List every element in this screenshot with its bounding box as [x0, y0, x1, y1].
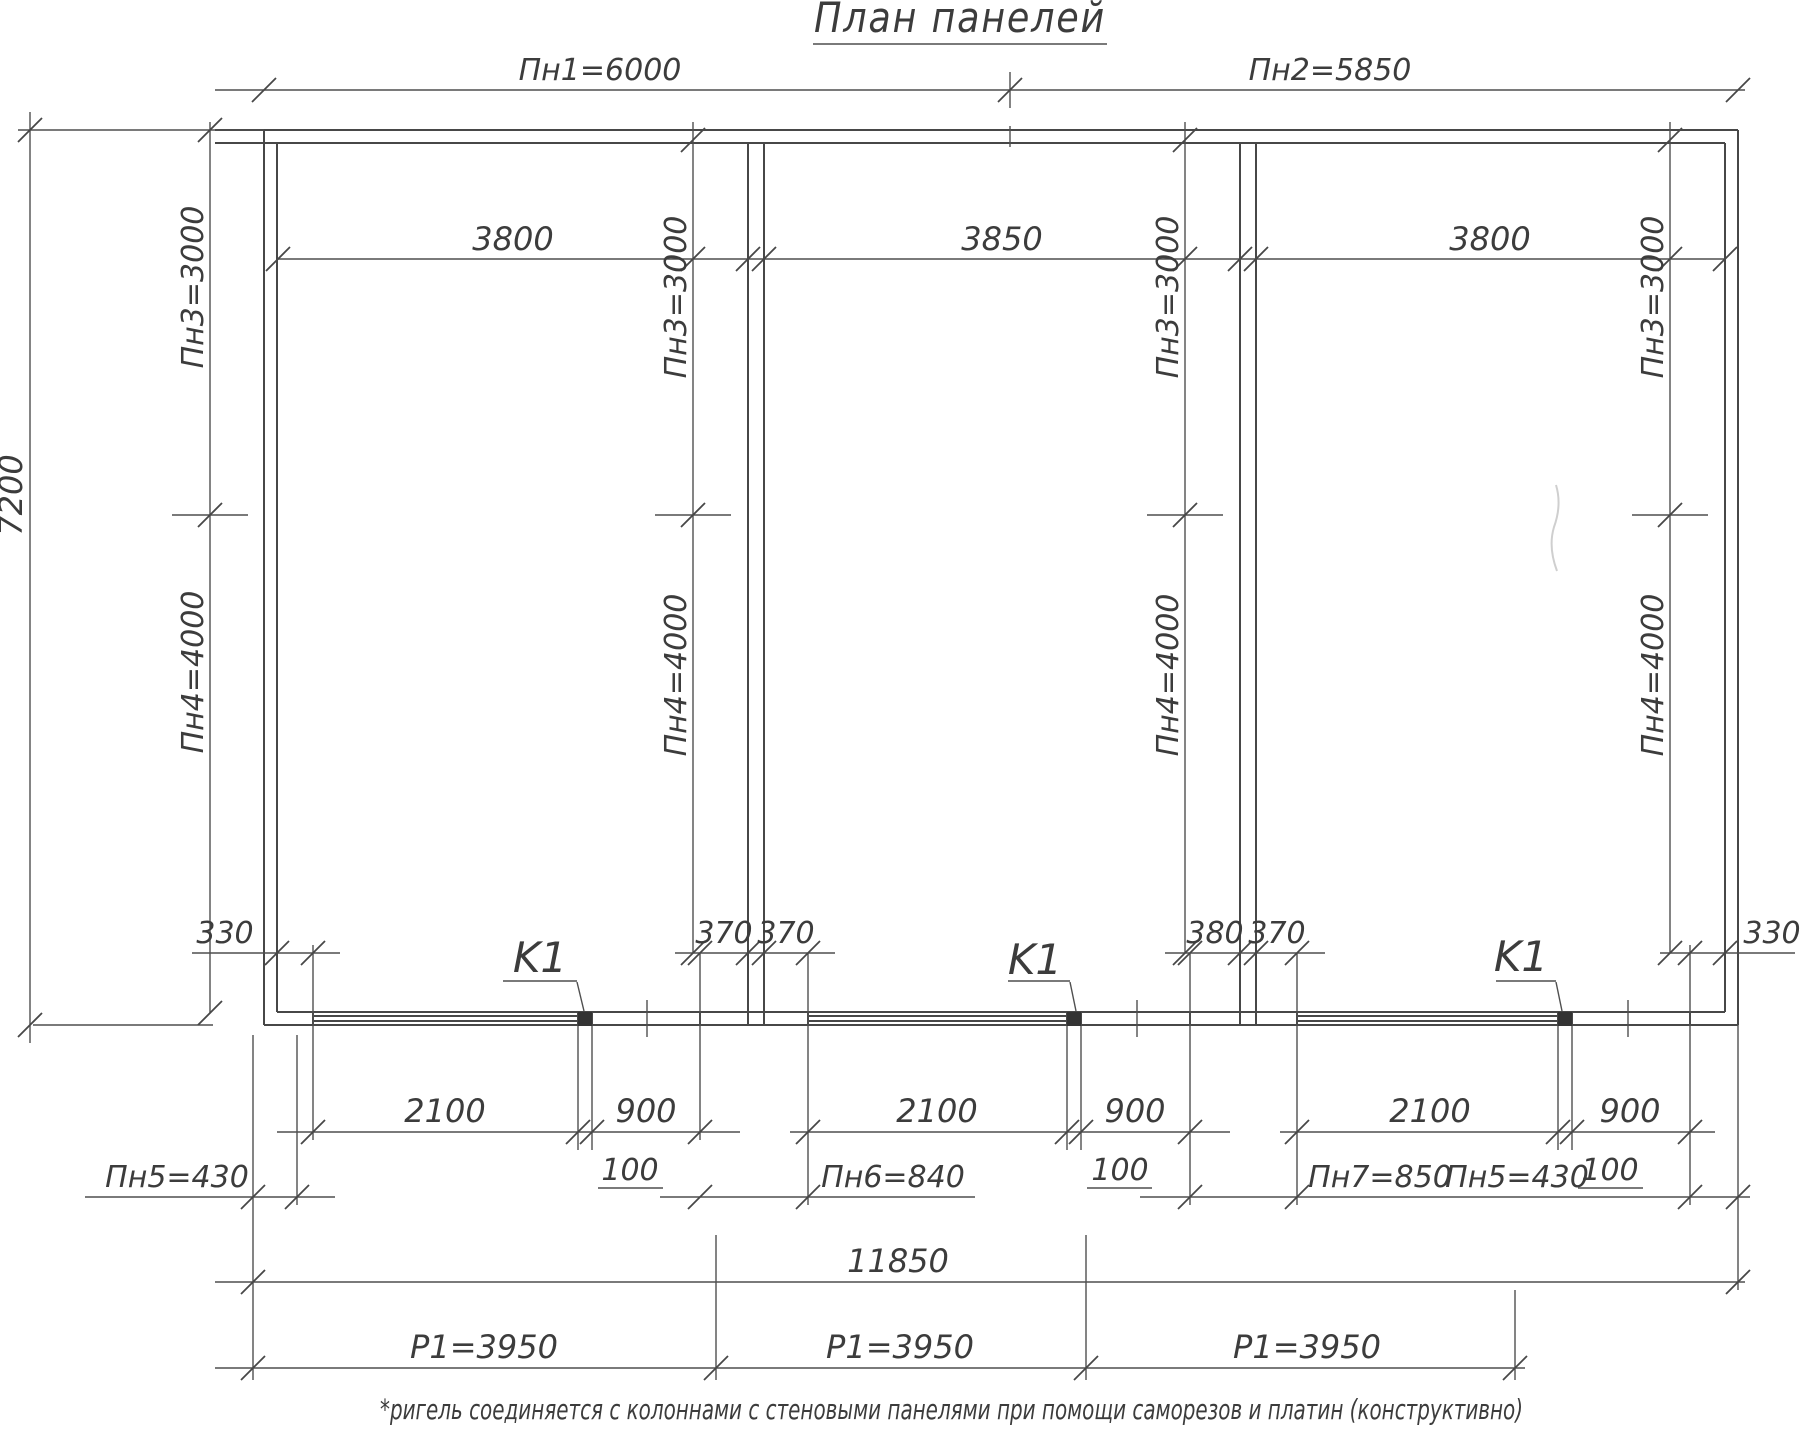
dim-bay1-panel-label: 2100: [404, 1092, 485, 1130]
dim-d1-right-370-label: 370: [757, 916, 814, 951]
dim-pn5-left-label: Пн5=430: [105, 1160, 249, 1195]
panel-plan-sheet: План панелей Пн1=6000 Пн2=5850 7200 Пн3=…: [0, 0, 1800, 1431]
column-k1-marker: [1558, 1012, 1572, 1026]
drawing-line: [1070, 982, 1076, 1011]
dim-pn1-label: Пн1=6000: [519, 53, 682, 88]
dim-pn2-label: Пн2=5850: [1249, 53, 1412, 88]
dim-bay3-opening-label: 900: [1599, 1092, 1660, 1130]
dim-pn7-label: Пн7=850: [1308, 1160, 1452, 1195]
panel-plan-drawing: План панелей Пн1=6000 Пн2=5850 7200 Пн3=…: [0, 0, 1800, 1431]
dim-bay2-pn4-label: Пн4=4000: [1151, 594, 1186, 757]
dim-pn4-label: Пн4=4000: [176, 591, 211, 754]
dim-overall-width-label: 11850: [847, 1242, 949, 1280]
dim-d2-left-380-label: 380: [1186, 916, 1243, 951]
drawing-line: [577, 982, 584, 1011]
column-k1-marker: [1067, 1012, 1081, 1026]
column-k1-label: K1: [513, 933, 567, 982]
drawing-title: План панелей: [814, 0, 1106, 42]
column-k1-marker: [578, 1012, 592, 1026]
dim-bay2-width-label: 3850: [961, 220, 1042, 258]
dim-bay2-pn3-label: Пн3=3000: [1151, 216, 1186, 379]
dim-r1-label: Р1=3950: [410, 1328, 558, 1366]
dim-bay1-pn3-label: Пн3=3000: [659, 216, 694, 379]
dim-overall-height-label: 7200: [0, 454, 30, 535]
drawing-line: [1556, 982, 1562, 1011]
dim-bay3-panel-label: 2100: [1389, 1092, 1470, 1130]
dim-left-330-label: 330: [196, 916, 253, 951]
footnote-text: *ригель соединяется с колоннами с стенов…: [380, 1393, 1523, 1426]
dim-r1-label: Р1=3950: [1233, 1328, 1381, 1366]
dim-bay1-width-label: 3800: [472, 220, 553, 258]
dim-r1-label: Р1=3950: [826, 1328, 974, 1366]
dim-bay2-opening-label: 900: [1104, 1092, 1165, 1130]
dim-pn6-label: Пн6=840: [821, 1160, 965, 1195]
dim-pn5-right-label: Пн5=430: [1445, 1160, 1589, 1195]
dim-d1-left-370-label: 370: [695, 916, 752, 951]
column-k1-label: K1: [1494, 932, 1548, 981]
dim-bay3-100-label: 100: [1581, 1153, 1638, 1188]
dim-pn3-label: Пн3=3000: [176, 206, 211, 369]
dim-bay3-width-label: 3800: [1449, 220, 1530, 258]
dim-d2-right-370-label: 370: [1248, 916, 1305, 951]
dim-bay3-pn4-label: Пн4=4000: [1636, 594, 1671, 757]
dim-bay2-100-label: 100: [1091, 1153, 1148, 1188]
dim-bay3-pn3-label: Пн3=3000: [1636, 216, 1671, 379]
dim-bay1-100-label: 100: [601, 1153, 658, 1188]
dim-right-330-label: 330: [1743, 916, 1800, 951]
dim-bay1-opening-label: 900: [615, 1092, 676, 1130]
scan-artifact: [1552, 485, 1559, 571]
dim-bay1-pn4-label: Пн4=4000: [659, 594, 694, 757]
column-k1-label: K1: [1008, 935, 1062, 984]
dim-bay2-panel-label: 2100: [896, 1092, 977, 1130]
